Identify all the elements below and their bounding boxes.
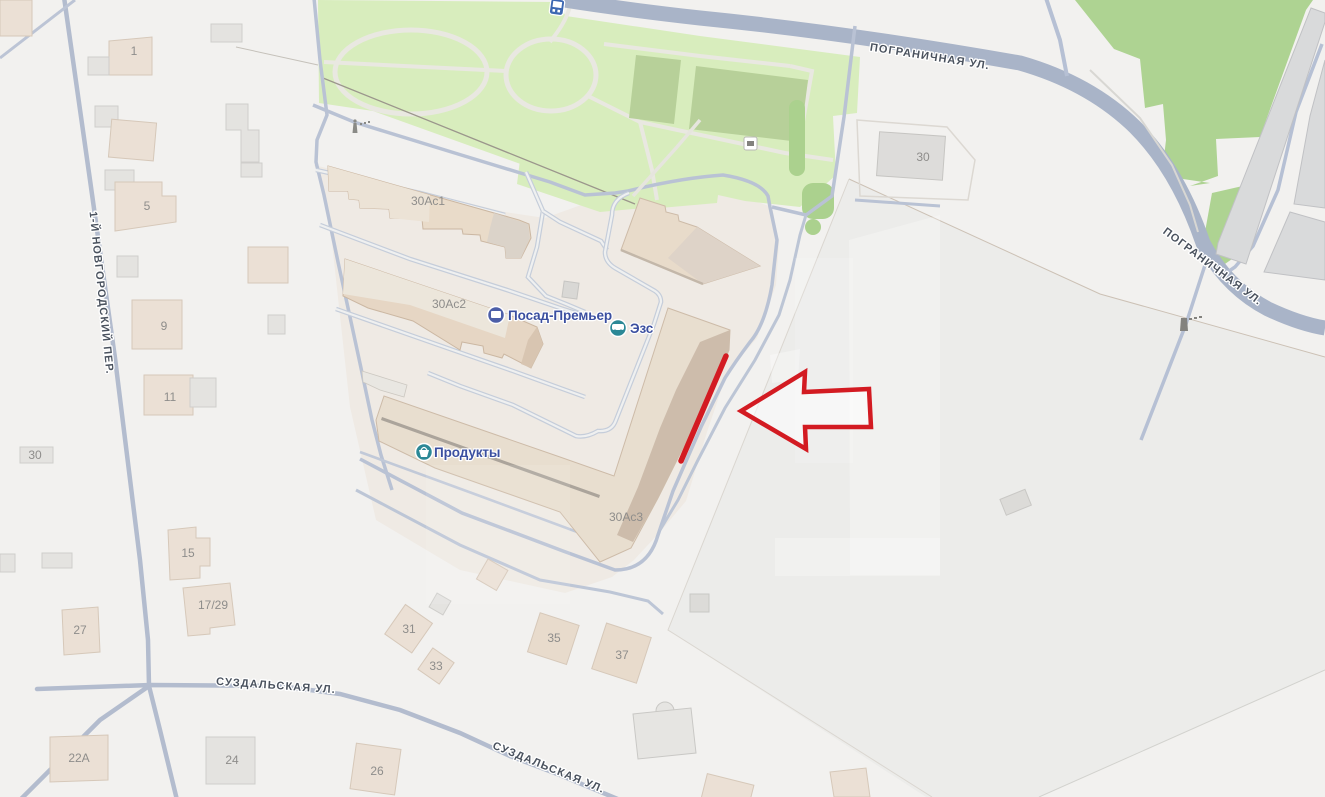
svg-text:30: 30 <box>916 150 930 164</box>
svg-text:17/29: 17/29 <box>198 598 228 612</box>
svg-text:Эзс: Эзс <box>630 321 654 336</box>
svg-text:1: 1 <box>131 44 138 58</box>
svg-text:31: 31 <box>402 622 416 636</box>
svg-text:11: 11 <box>164 390 177 404</box>
svg-text:26: 26 <box>370 764 384 778</box>
svg-text:33: 33 <box>429 659 443 673</box>
svg-text:22А: 22А <box>68 751 89 765</box>
svg-text:30Ас3: 30Ас3 <box>609 510 643 524</box>
svg-text:35: 35 <box>547 631 561 645</box>
svg-text:24: 24 <box>225 753 239 767</box>
svg-text:37: 37 <box>615 648 629 662</box>
svg-text:9: 9 <box>161 319 168 333</box>
svg-text:Продукты: Продукты <box>434 445 500 460</box>
svg-text:27: 27 <box>73 623 87 637</box>
svg-text:30: 30 <box>28 448 42 462</box>
svg-text:Посад-Премьер: Посад-Премьер <box>508 308 612 323</box>
svg-text:30Ас1: 30Ас1 <box>411 194 445 208</box>
svg-text:5: 5 <box>144 199 151 213</box>
svg-text:15: 15 <box>181 546 195 560</box>
svg-text:30Ас2: 30Ас2 <box>432 297 466 311</box>
